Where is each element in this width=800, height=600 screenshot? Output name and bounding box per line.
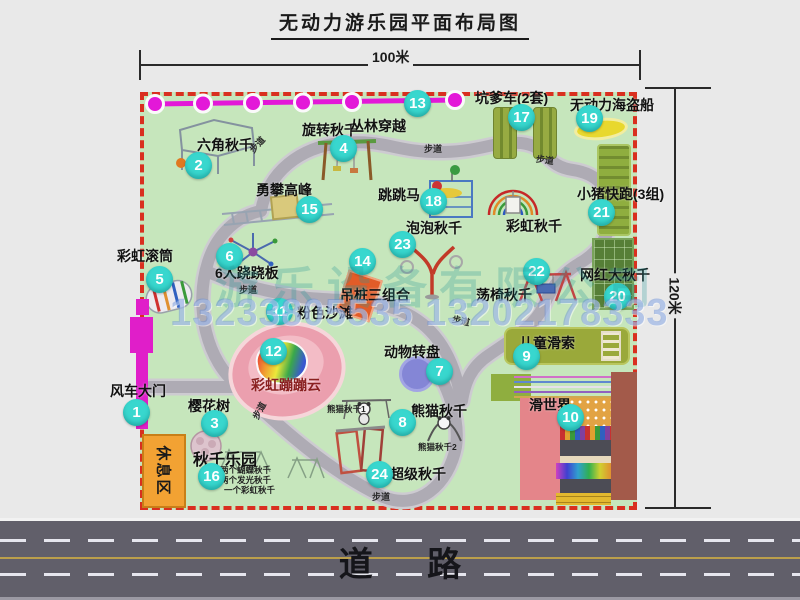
slide-world-dark-band-1	[560, 440, 611, 456]
attraction-badge-8: 8	[389, 409, 416, 436]
attraction-badge-9: 9	[513, 343, 540, 370]
attraction-badge-17: 17	[508, 104, 535, 131]
slide-world-gap-band	[560, 456, 611, 463]
attraction-label-13: 丛林穿越	[350, 116, 406, 136]
attraction-label-5: 彩虹滚筒	[117, 246, 173, 266]
attraction-label-2: 六角秋千	[197, 135, 253, 155]
attraction-label-18: 跳跳马	[378, 185, 420, 205]
attraction-label-1: 风车大门	[110, 381, 166, 401]
swing-park-note-2: 两个发光秋千	[220, 475, 271, 485]
right-dimension-tick-top	[645, 87, 711, 89]
attraction-badge-2: 2	[185, 152, 212, 179]
attraction-label-23: 泡泡秋千	[406, 218, 462, 238]
attraction-badge-5: 5	[146, 266, 173, 293]
attraction-label-21: 小猪快跑(3组)	[577, 184, 664, 204]
swing-park-note-1: 两个蝴蝶秋千	[220, 465, 271, 475]
attraction-badge-13: 13	[404, 90, 431, 117]
attraction-badge-15: 15	[296, 196, 323, 223]
slide-world-rainbow-band	[556, 463, 611, 479]
rest-area-box: 休息区	[142, 434, 186, 508]
panda-swing-2-label: 熊猫秋千2	[418, 442, 457, 452]
road: 道路	[0, 518, 800, 600]
right-dimension-tick-bottom	[645, 507, 711, 509]
slide-world-wavy-band	[556, 493, 611, 505]
windmill-gate-top	[136, 299, 149, 315]
attraction-label-8: 熊猫秋千	[411, 401, 467, 421]
attraction-label-24: 超级秋千	[390, 464, 446, 484]
slide-world-cable-2	[514, 381, 613, 383]
attraction-badge-16: 16	[198, 463, 225, 490]
slide-world-cable-4	[514, 391, 613, 393]
watermark-phone: 13233805535 13202178333	[170, 292, 669, 335]
walkway-label-2: 步道	[424, 142, 442, 155]
top-dimension-label: 100米	[368, 47, 413, 67]
walkway-label-3: 步道	[535, 152, 555, 167]
top-dimension-tick-left	[139, 50, 141, 80]
road-label: 道路	[0, 537, 800, 586]
top-dimension-tick-right	[639, 50, 641, 80]
page-title: 无动力游乐园平面布局图	[271, 8, 529, 40]
rest-area-label: 休息区	[154, 445, 175, 496]
rainbow-swing-label: 彩虹秋千	[506, 216, 562, 236]
attraction-badge-18: 18	[420, 188, 447, 215]
attraction-badge-7: 7	[426, 358, 453, 385]
kids-zipline-ladder	[601, 331, 621, 361]
attraction-badge-1: 1	[123, 399, 150, 426]
panda-swing-1-label: 熊猫秋千1	[327, 404, 366, 414]
park-layout-map: 无动力游乐园平面布局图 100米 120米	[0, 0, 800, 600]
attraction-badge-24: 24	[366, 461, 393, 488]
attraction-badge-10: 10	[557, 404, 584, 431]
attraction-badge-12: 12	[260, 338, 287, 365]
attraction-badge-21: 21	[588, 199, 615, 226]
walkway-label-7: 步道	[372, 490, 390, 503]
attraction-badge-4: 4	[330, 135, 357, 162]
slide-world-dark-band-2	[560, 479, 611, 493]
swing-park-note-3: 一个彩虹秋千	[224, 485, 275, 495]
slide-world-cable-3	[514, 386, 613, 388]
attraction-badge-19: 19	[576, 105, 603, 132]
attraction-label-12: 彩虹蹦蹦云	[251, 375, 321, 395]
windmill-gate-head	[130, 317, 153, 353]
attraction-badge-3: 3	[201, 410, 228, 437]
attraction-label-17: 坑爹车(2套)	[475, 88, 548, 108]
slide-world-cable-1	[514, 376, 613, 378]
slide-world-brown-strip	[611, 372, 637, 500]
